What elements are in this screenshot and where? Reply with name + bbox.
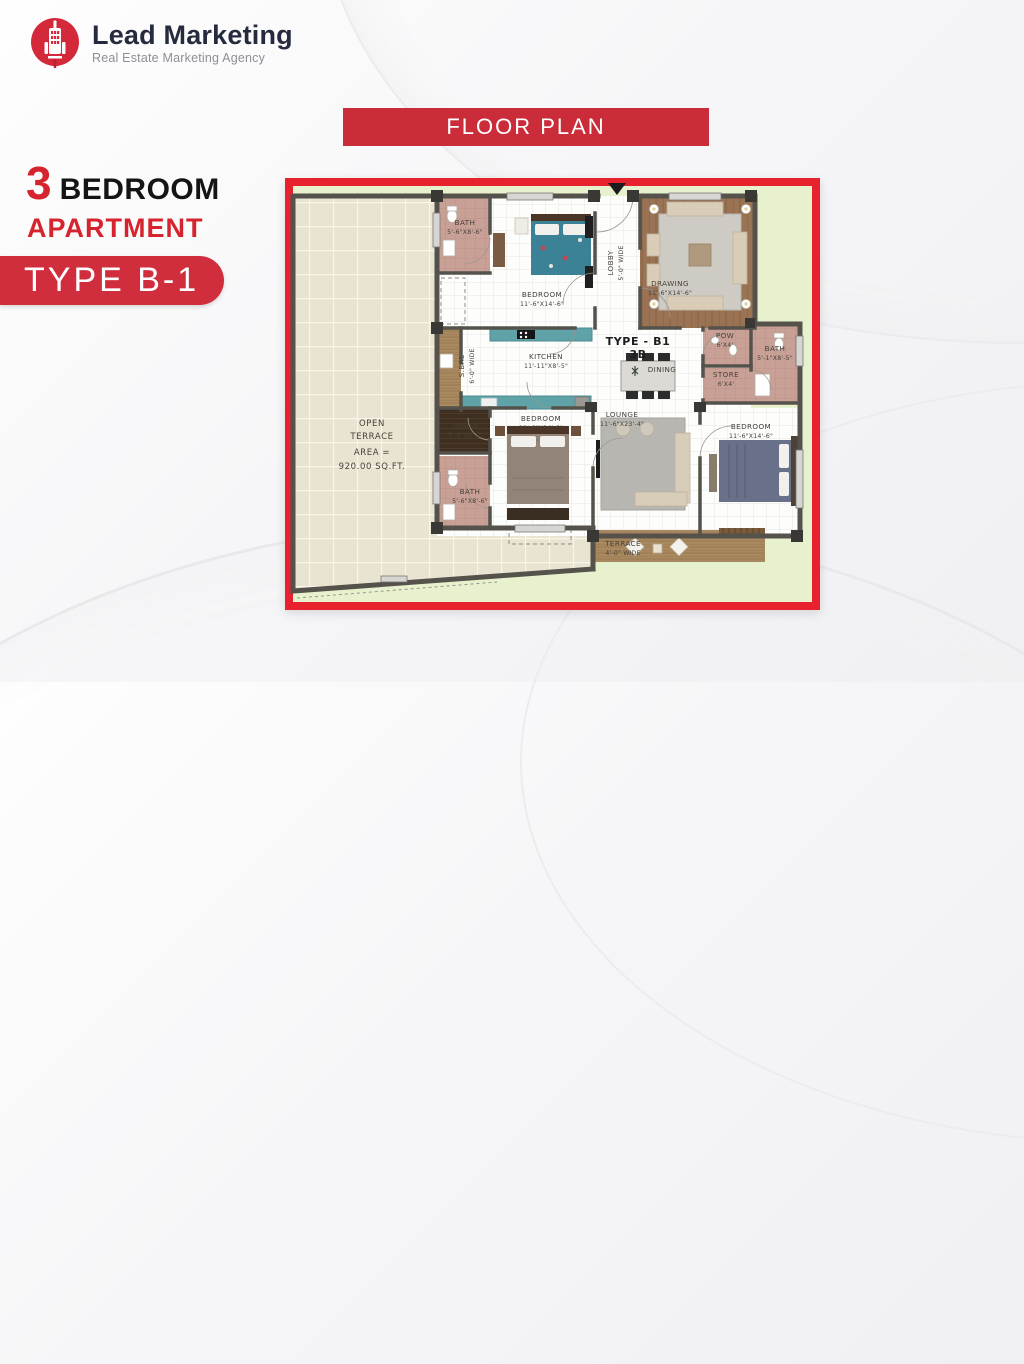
svg-text:AREA =: AREA =	[354, 448, 390, 458]
svg-text:11'-6"X14'-6": 11'-6"X14'-6"	[729, 433, 773, 440]
svg-text:STORE: STORE	[713, 370, 739, 379]
svg-text:11'-11"X8'-5": 11'-11"X8'-5"	[524, 363, 568, 370]
type-b1-banner: TYPE B-1	[0, 256, 224, 305]
svg-text:TERRACE: TERRACE	[604, 539, 641, 548]
svg-text:6'X4': 6'X4'	[718, 381, 735, 388]
floor-plan-banner: FLOOR PLAN	[343, 108, 709, 146]
svg-text:DRAWING: DRAWING	[651, 279, 689, 288]
svg-text:6'X4': 6'X4'	[717, 342, 734, 349]
floor-plan: BATH 5'-6"X8'-6" BEDROOM 11'-6"X14'-6" L…	[285, 178, 820, 610]
svg-text:OPEN: OPEN	[359, 419, 385, 429]
svg-text:S.BAL: S.BAL	[457, 355, 466, 378]
svg-text:BATH: BATH	[455, 218, 476, 227]
floor-plan-drawing: BATH 5'-6"X8'-6" BEDROOM 11'-6"X14'-6" L…	[285, 178, 820, 610]
svg-text:DRESS: DRESS	[453, 421, 479, 430]
svg-text:BATH: BATH	[765, 344, 786, 353]
bedroom-label: BEDROOM	[60, 173, 220, 207]
svg-text:KITCHEN: KITCHEN	[529, 352, 563, 361]
lead-marketing-logo-icon	[28, 16, 82, 70]
svg-text:5'-6"X8'-6": 5'-6"X8'-6"	[452, 498, 488, 505]
svg-text:3B: 3B	[629, 348, 646, 361]
bedroom-count: 3	[26, 160, 52, 206]
svg-text:BEDROOM: BEDROOM	[521, 414, 561, 423]
svg-text:920.00 SQ.FT.: 920.00 SQ.FT.	[339, 462, 406, 472]
apartment-info-panel: 3 BEDROOM APARTMENT TYPE B-1	[0, 160, 260, 305]
svg-text:11'-6"X23'-4": 11'-6"X23'-4"	[600, 421, 644, 428]
svg-text:POW: POW	[716, 331, 734, 340]
svg-text:BEDROOM: BEDROOM	[522, 290, 562, 299]
svg-text:5'-0" WIDE: 5'-0" WIDE	[618, 245, 625, 280]
brand-tagline: Real Estate Marketing Agency	[92, 51, 293, 65]
svg-text:5'-6"X5'-7": 5'-6"X5'-7"	[448, 432, 484, 439]
svg-text:6'-0" WIDE: 6'-0" WIDE	[469, 348, 476, 383]
svg-text:LOBBY: LOBBY	[606, 250, 615, 275]
apartment-label: APARTMENT	[0, 213, 260, 244]
svg-text:BATH: BATH	[460, 487, 481, 496]
svg-text:5'-1"X8'-5": 5'-1"X8'-5"	[757, 355, 793, 362]
svg-text:TYPE - B1: TYPE - B1	[606, 335, 671, 348]
background-swirl	[0, 520, 1024, 1364]
svg-text:LOUNGE: LOUNGE	[606, 410, 639, 419]
svg-text:11'-6"X14'-6": 11'-6"X14'-6"	[519, 425, 563, 432]
brand-name: Lead Marketing	[92, 21, 293, 49]
type-b1-label: TYPE B-1	[0, 261, 199, 300]
svg-text:5'-6"X8'-6": 5'-6"X8'-6"	[447, 229, 483, 236]
svg-text:11'-6"X14'-6": 11'-6"X14'-6"	[520, 301, 564, 308]
svg-text:11'-6"X14'-6": 11'-6"X14'-6"	[648, 290, 692, 297]
svg-text:4'-0" WIDE: 4'-0" WIDE	[605, 550, 640, 557]
svg-text:TERRACE: TERRACE	[349, 432, 393, 442]
floor-plan-title: FLOOR PLAN	[446, 114, 605, 140]
brand-header: Lead Marketing Real Estate Marketing Age…	[28, 16, 293, 70]
room-label-dining: DINING	[648, 365, 677, 374]
dress-floor	[437, 408, 490, 453]
svg-text:BEDROOM: BEDROOM	[731, 422, 771, 431]
